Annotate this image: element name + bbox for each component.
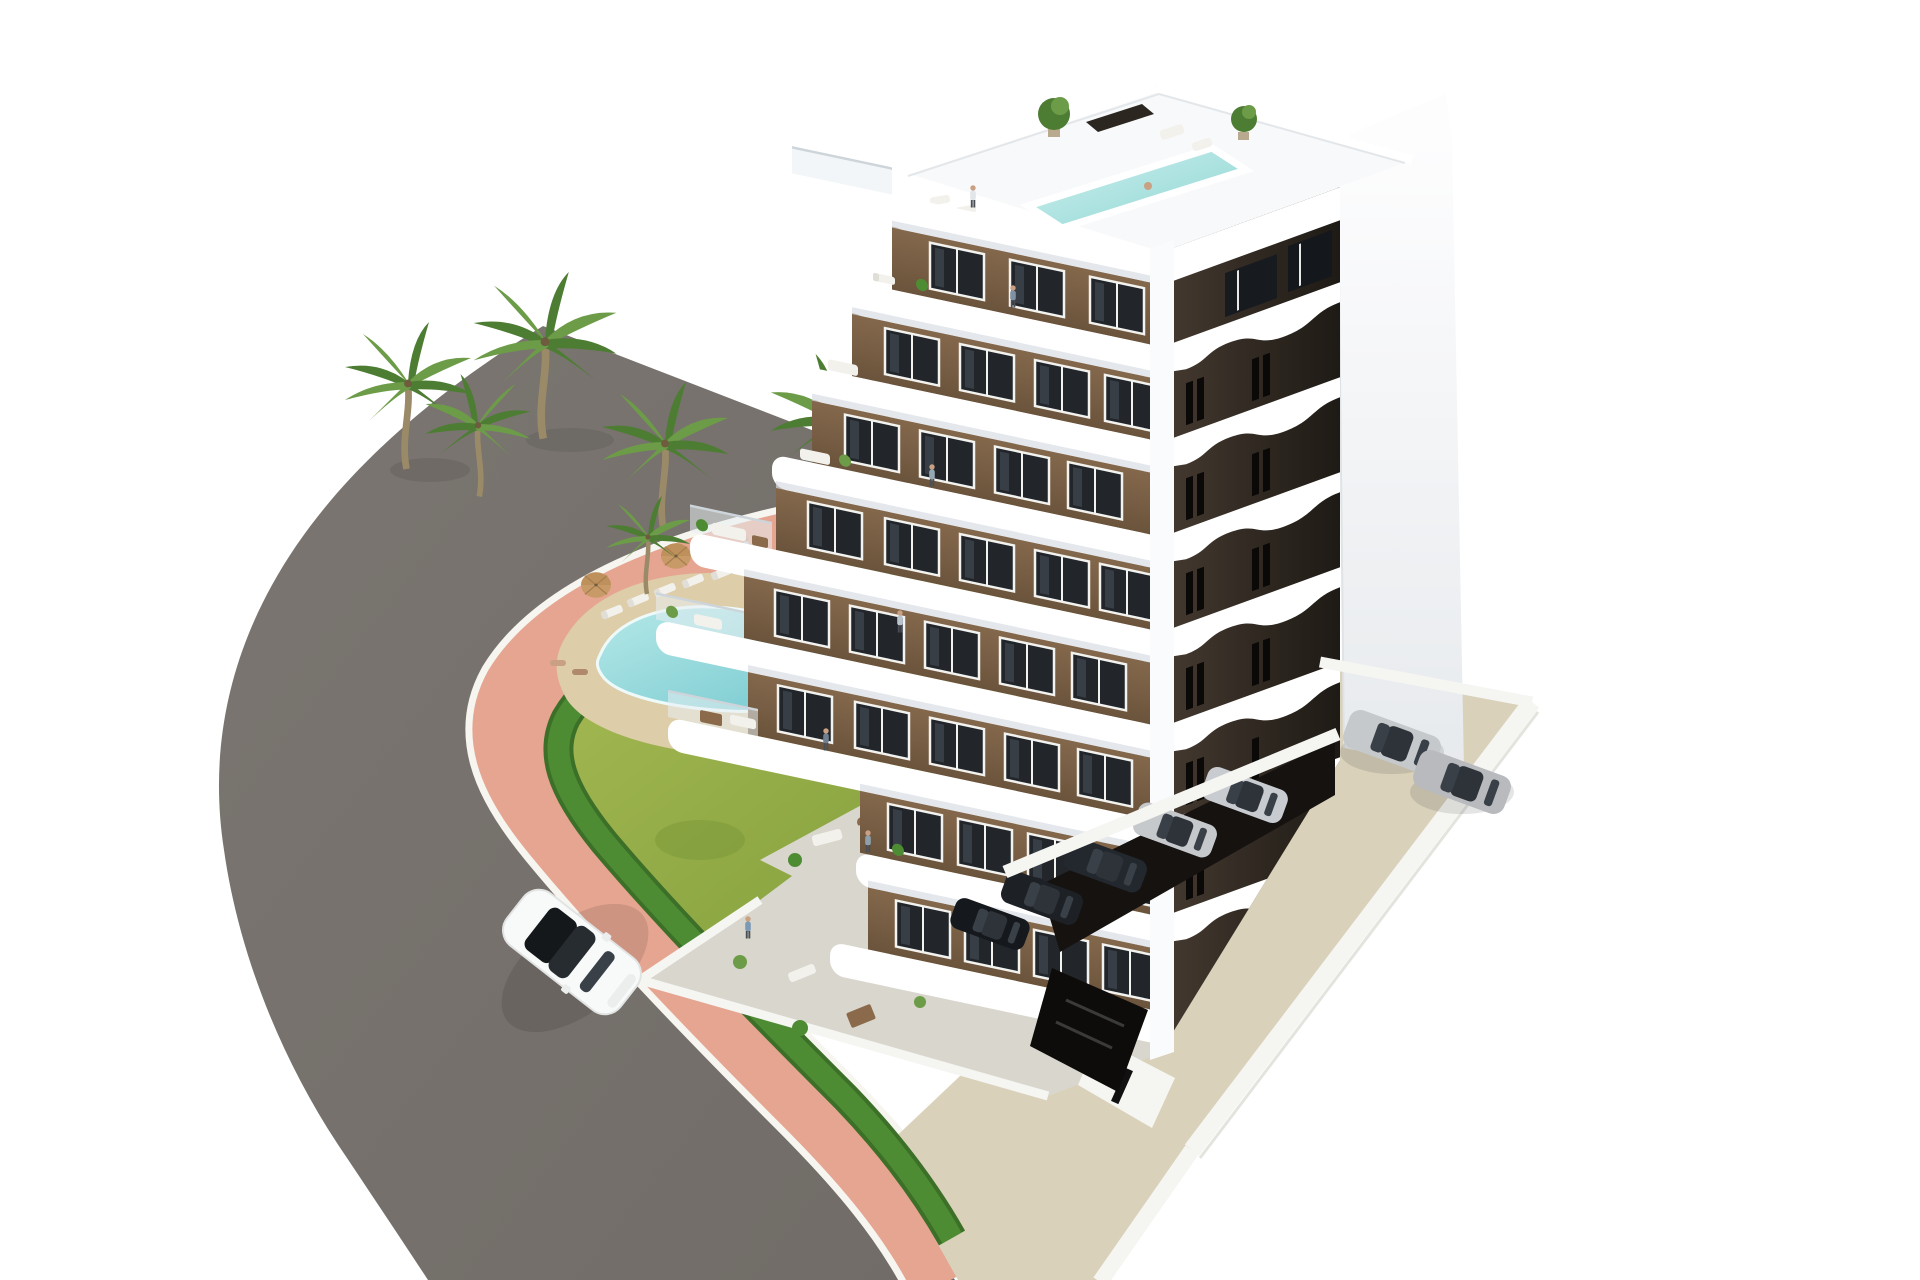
- parasol: [661, 543, 691, 569]
- swimmer: [1144, 182, 1152, 190]
- corner-pier: [1150, 240, 1174, 1060]
- parasol: [581, 572, 611, 598]
- architectural-render: [0, 0, 1920, 1280]
- render-canvas: [0, 0, 1920, 1280]
